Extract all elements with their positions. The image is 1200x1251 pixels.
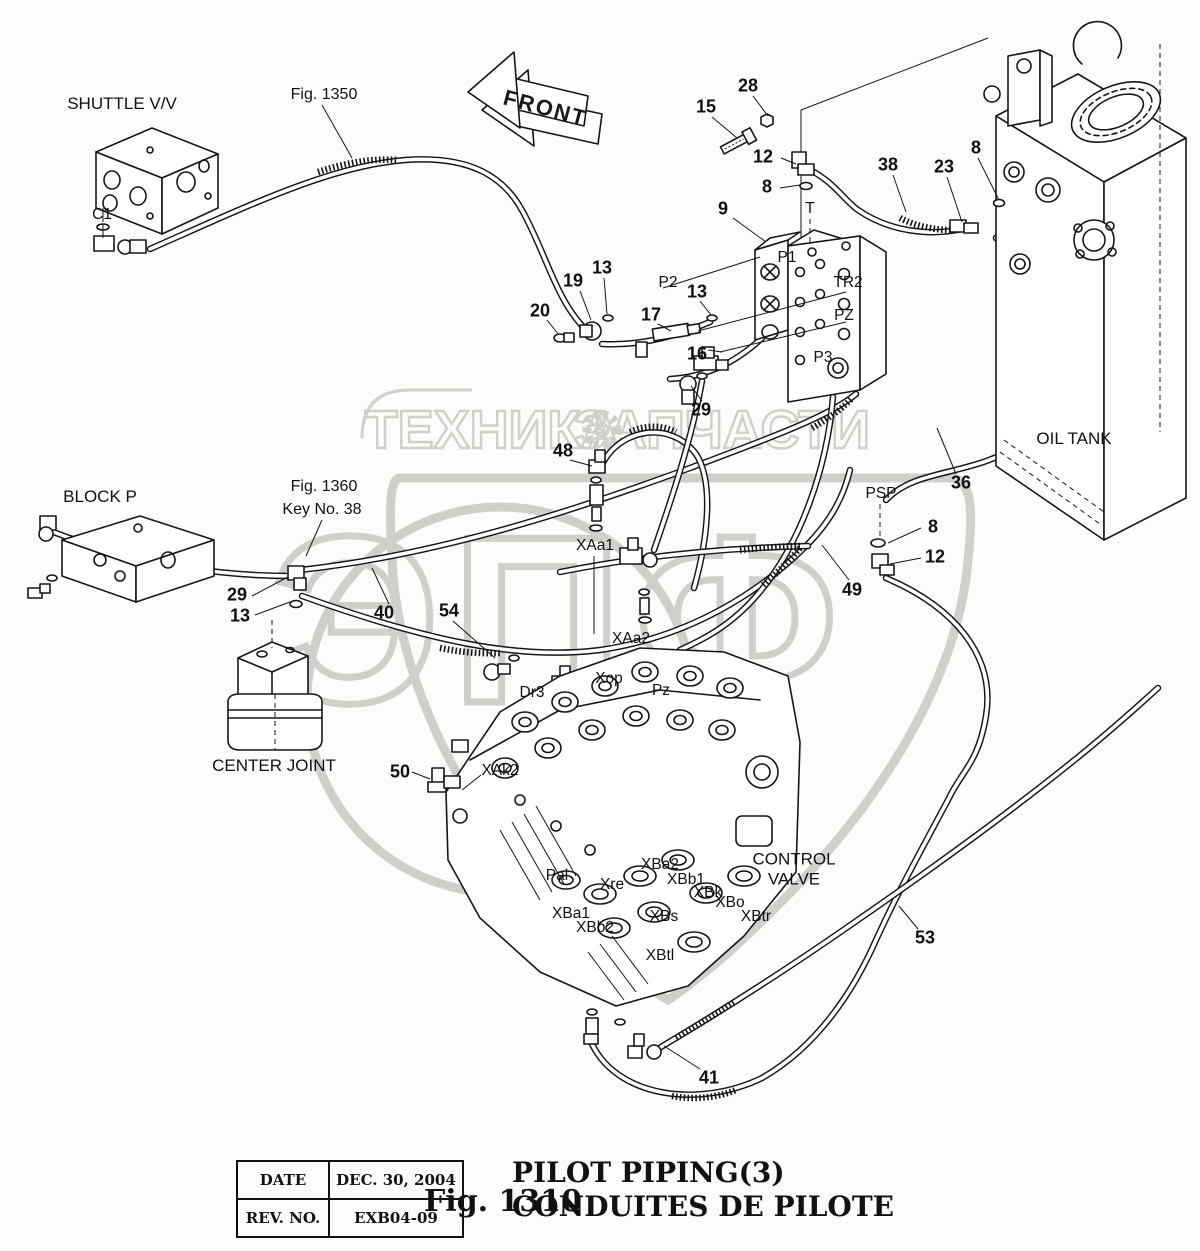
- callout-16: 16: [687, 344, 707, 365]
- title-block-date-label: DATE: [238, 1162, 330, 1198]
- drawing-page: ТЕХНИКА ЗАПЧАСТИ ЭПФ: [0, 0, 1200, 1251]
- drawing-title-fr: CONDUITES DE PILOTE: [512, 1190, 894, 1224]
- callout-8-top: 8: [762, 177, 772, 198]
- component-block-p: BLOCK P: [63, 487, 137, 507]
- port-p3: P3: [814, 349, 833, 367]
- callout-54: 54: [439, 601, 459, 622]
- port-xbtl: XBtl: [646, 947, 674, 965]
- drawing-title-en: PILOT PIPING(3): [512, 1156, 894, 1190]
- callout-15: 15: [696, 97, 716, 118]
- port-xaa2: XAa2: [612, 630, 650, 648]
- callout-8-psp: 8: [928, 517, 938, 538]
- drawing-title: PILOT PIPING(3) CONDUITES DE PILOTE: [512, 1156, 894, 1223]
- component-center-joint: CENTER JOINT: [212, 756, 336, 776]
- port-dr3: Dr3: [520, 684, 545, 702]
- callout-12-psp: 12: [925, 547, 945, 568]
- callout-49: 49: [842, 580, 862, 601]
- callout-8-tank: 8: [971, 138, 981, 159]
- callout-9: 9: [718, 199, 728, 220]
- port-p2: P2: [659, 274, 678, 292]
- port-tr2: TR2: [833, 274, 862, 292]
- port-xop: Xop: [595, 670, 623, 688]
- port-p1: P1: [778, 249, 797, 267]
- callout-13-b: 13: [687, 282, 707, 303]
- port-psp: PSP: [865, 485, 896, 503]
- callout-41: 41: [699, 1068, 719, 1089]
- callout-13-a: 13: [592, 258, 612, 279]
- callout-23: 23: [934, 157, 954, 178]
- port-xbs: XBs: [650, 908, 678, 926]
- callout-48: 48: [553, 441, 573, 462]
- component-control-valve: CONTROL VALVE: [752, 849, 835, 888]
- callout-13-c: 13: [230, 606, 250, 627]
- callout-50: 50: [390, 762, 410, 783]
- title-block-rev-label: REV. NO.: [238, 1200, 330, 1236]
- callout-38: 38: [878, 155, 898, 176]
- callout-36: 36: [951, 473, 971, 494]
- port-pz-valve: Pz: [652, 682, 670, 700]
- port-xre: Xre: [600, 876, 624, 894]
- callout-20: 20: [530, 301, 550, 322]
- label-layer: SHUTTLE V/VFig. 1350BLOCK PFig. 1360Key …: [0, 0, 1200, 1251]
- callout-17: 17: [641, 305, 661, 326]
- callout-12-top: 12: [753, 147, 773, 168]
- port-xbb2: XBb2: [576, 919, 614, 937]
- figref-1350: Fig. 1350: [291, 86, 358, 104]
- callout-40: 40: [374, 603, 394, 624]
- port-pz-manifold: PZ: [834, 307, 854, 325]
- port-xbtr: XBtr: [741, 908, 771, 926]
- figref-1360: Fig. 1360: [291, 478, 358, 496]
- port-c1: C1: [92, 206, 112, 224]
- port-t: T: [805, 200, 814, 218]
- callout-29-b: 29: [227, 585, 247, 606]
- component-shuttle-valve: SHUTTLE V/V: [67, 94, 177, 114]
- port-pal: Pal: [546, 867, 568, 885]
- port-xak2: XAk2: [481, 762, 518, 780]
- callout-53: 53: [915, 928, 935, 949]
- callout-19: 19: [563, 271, 583, 292]
- component-oil-tank: OIL TANK: [1036, 429, 1111, 449]
- figref-key-no-38: Key No. 38: [282, 501, 361, 519]
- callout-28: 28: [738, 76, 758, 97]
- callout-29-a: 29: [691, 400, 711, 421]
- port-xaa1: XAa1: [576, 537, 614, 555]
